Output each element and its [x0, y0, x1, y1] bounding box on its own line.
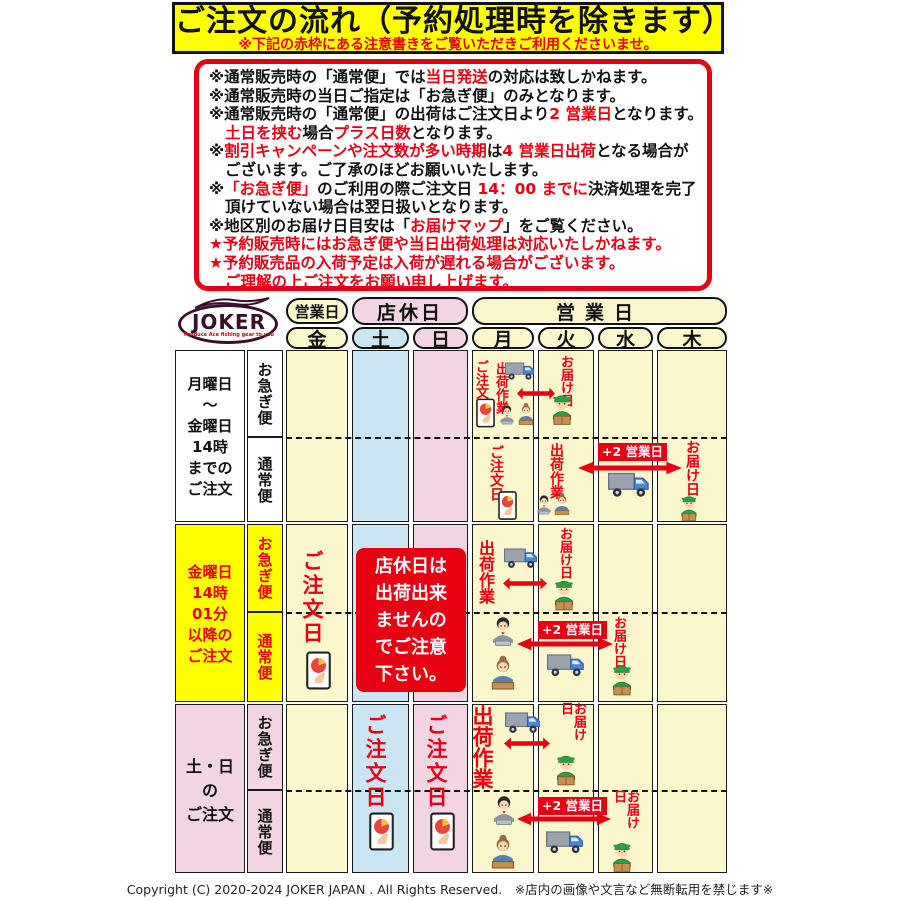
r2e-shipping-label: 出荷作業: [477, 538, 493, 606]
logo-tagline: Produce Ace fishing gear to you: [175, 332, 283, 338]
day-pill-wed: 水: [598, 327, 653, 349]
cell-r3-thu: [657, 704, 727, 873]
copyright-text: Copyright (C) 2020-2024 JOKER JAPAN . Al…: [0, 879, 900, 898]
staff-woman-icon: [486, 830, 520, 872]
sublabel-express-r3: お急ぎ便: [247, 704, 283, 790]
sublabel-express-r2: お急ぎ便: [247, 524, 283, 612]
day-pill-sat: 土: [352, 327, 409, 349]
cell-r1-sat: [352, 350, 409, 522]
sublabel-normal-r3: 通常便: [247, 790, 283, 873]
notice-line: 土日を挟む場合プラス日数となります。: [209, 124, 699, 143]
notice-line: ★予約販売品の入荷予定は入荷が遅れる場合がございます。: [209, 254, 699, 273]
staff-woman-icon: [515, 402, 537, 425]
order-flow-infographic: ご注文の流れ（予約処理時を除きます） ※下記の赤枠にある注意書きをご覧いただきご…: [0, 0, 900, 900]
phone-order-icon: [476, 398, 495, 428]
sublabel-normal-r1: 通常便: [247, 437, 283, 522]
title-banner: ご注文の流れ（予約処理時を除きます） ※下記の赤枠にある注意書きをご覧いただきご…: [172, 2, 724, 54]
notice-line: ※「お急ぎ便」のご利用の際ご注文日 14：00 までに決済処理を完了: [209, 180, 699, 199]
notice-line: 頂けていない場合は翌日扱いとなります。: [209, 198, 699, 217]
arrow-icon: [503, 577, 547, 590]
header-group-business-fri: 営業日: [286, 298, 348, 324]
courier-icon: [551, 750, 581, 786]
truck-icon: [505, 360, 535, 381]
header-group-business-week: 営業日: [472, 297, 727, 325]
courier-icon: [547, 390, 577, 425]
notice-line: ※通常販売時の「通常便」では当日発送の対応は致しかねます。: [209, 68, 699, 87]
staff-man-icon: [489, 791, 519, 829]
notice-line: ご理解の上ご注文をお願い申し上げます。: [209, 273, 699, 292]
phone-order-icon: [498, 491, 517, 520]
r3e-shipping-label: 出荷作業: [471, 704, 492, 790]
courier-icon: [607, 660, 637, 696]
notice-box: ※通常販売時の「通常便」では当日発送の対応は致しかねます。※通常販売時の当日ご指…: [194, 59, 712, 291]
page-title: ご注文の流れ（予約処理時を除きます）: [175, 5, 721, 38]
r3-order-day-sat-label: ご注文日: [364, 714, 385, 810]
page-subtitle: ※下記の赤枠にある注意書きをご覧いただきご利用くださいませ。: [175, 38, 721, 52]
staff-woman-icon: [551, 492, 573, 515]
r2e-delivery-label: お届け日: [558, 527, 571, 579]
r1n-delivery-label: お届け日: [685, 439, 699, 497]
arrow-icon: [504, 737, 550, 750]
notice-line: ※通常販売時の当日ご指定は「お急ぎ便」のみとなります。: [209, 87, 699, 106]
phone-order-icon: [369, 812, 394, 851]
cell-r1-sun: [413, 350, 468, 522]
day-pill-tue: 火: [538, 327, 594, 349]
day-pill-thu: 木: [657, 327, 727, 349]
r3e-delivery-label: お届け日: [559, 702, 585, 752]
cell-r3-fri: [286, 704, 348, 873]
r3n-delivery-label: お届け日: [612, 790, 638, 840]
notice-line: ※地区別のお届け日目安は「お届けマップ」をご覧ください。: [209, 217, 699, 236]
dashed-split-r1: [286, 437, 727, 439]
truck-icon: [546, 829, 584, 854]
plus2-days-badge: +2 営業日: [538, 621, 607, 639]
courier-icon: [676, 492, 702, 521]
courier-icon: [607, 838, 637, 872]
staff-man-icon: [488, 612, 518, 650]
truck-icon: [505, 710, 541, 734]
day-pill-mon: 月: [472, 327, 534, 349]
arrow-icon: [517, 637, 613, 651]
notice-line: ※通常販売時の「通常便」の出荷はご注文日より2 営業日となります。: [209, 105, 699, 124]
courier-icon: [549, 575, 579, 611]
notice-line: ※割引キャンペーンや注文数が多い時期は4 営業日出荷となる場合が: [209, 142, 699, 161]
staff-man-icon: [497, 404, 517, 425]
closed-days-notice: 店休日は 出荷出来 ませんの でご注意 下さい。: [356, 548, 466, 692]
notice-line: ★予約販売時にはお急ぎ便や当日出荷処理は対応いたしかねます。: [209, 235, 699, 254]
truck-icon: [504, 546, 538, 569]
phone-order-icon: [430, 812, 455, 851]
truck-icon: [608, 470, 650, 498]
row-label-sat-sun: 土・日 の ご注文: [175, 704, 245, 873]
notice-line: ございます。ご了承のほどお願いいたします。: [209, 161, 699, 180]
cell-r1-fri: [286, 350, 348, 522]
joker-logo: JOKER Produce Ace fishing gear to you: [175, 296, 283, 349]
plus2-days-badge: +2 営業日: [538, 797, 607, 815]
r3-order-day-sun-label: ご注文日: [425, 714, 446, 810]
plus2-days-badge: +2 営業日: [598, 443, 667, 461]
logo-name: JOKER: [175, 310, 283, 334]
notice-lines: ※通常販売時の「通常便」では当日発送の対応は致しかねます。※通常販売時の当日ご指…: [209, 68, 699, 291]
row-label-fri-after-14: 金曜日 14時 01分 以降の ご注文: [175, 524, 245, 702]
row-label-mon-fri: 月曜日 〜 金曜日 14時 までの ご注文: [175, 350, 245, 522]
day-pill-fri: 金: [286, 327, 348, 349]
staff-woman-icon: [486, 651, 520, 693]
sublabel-normal-r2: 通常便: [247, 612, 283, 702]
phone-order-icon: [306, 651, 331, 690]
header-group-holiday: 店休日: [352, 297, 468, 325]
truck-icon: [547, 652, 585, 677]
sublabel-express-r1: お急ぎ便: [247, 350, 283, 437]
r2-order-day-label: ご注文日: [301, 548, 322, 648]
day-pill-sun: 日: [413, 327, 468, 349]
